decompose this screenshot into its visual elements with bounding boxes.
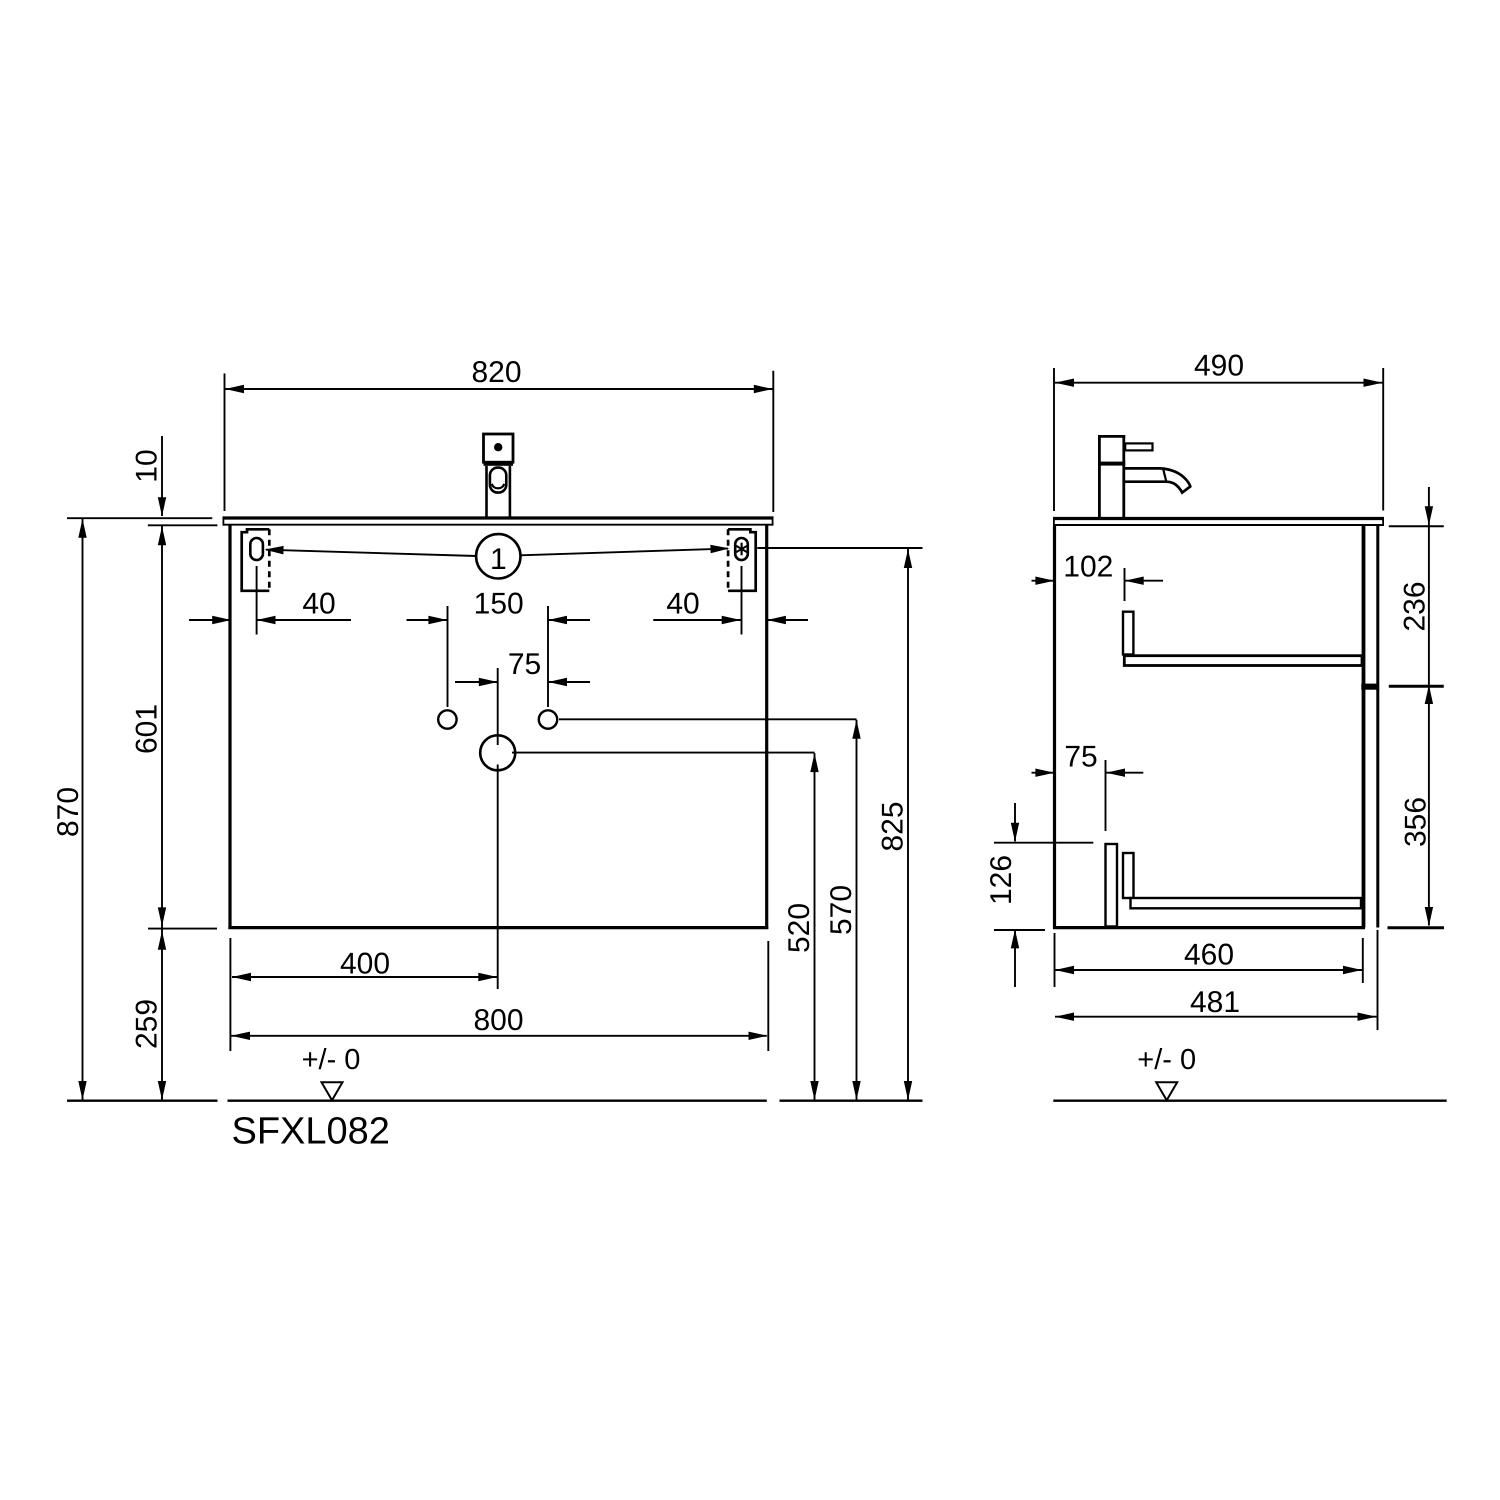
svg-text:75: 75	[508, 648, 541, 681]
svg-text:236: 236	[1399, 581, 1432, 631]
svg-text:1: 1	[490, 543, 507, 576]
svg-text:800: 800	[473, 1004, 523, 1037]
svg-text:520: 520	[783, 903, 816, 953]
svg-text:601: 601	[131, 704, 164, 754]
svg-text:481: 481	[1190, 986, 1240, 1019]
svg-text:870: 870	[52, 787, 85, 837]
svg-text:10: 10	[131, 449, 164, 482]
svg-text:825: 825	[877, 801, 910, 851]
svg-text:460: 460	[1184, 939, 1234, 972]
svg-text:40: 40	[302, 588, 335, 621]
svg-text:SFXL082: SFXL082	[232, 1111, 390, 1153]
svg-text:400: 400	[340, 948, 390, 981]
svg-text:+/- 0: +/- 0	[302, 1044, 361, 1076]
svg-text:40: 40	[666, 588, 699, 621]
svg-text:570: 570	[825, 885, 858, 935]
svg-text:356: 356	[1400, 797, 1433, 847]
svg-text:126: 126	[985, 855, 1018, 905]
svg-text:490: 490	[1194, 350, 1244, 383]
svg-text:+/- 0: +/- 0	[1137, 1044, 1196, 1076]
svg-text:150: 150	[474, 588, 524, 621]
svg-text:259: 259	[131, 999, 164, 1049]
svg-text:102: 102	[1063, 551, 1113, 584]
svg-text:75: 75	[1064, 741, 1097, 774]
svg-text:820: 820	[471, 356, 521, 389]
